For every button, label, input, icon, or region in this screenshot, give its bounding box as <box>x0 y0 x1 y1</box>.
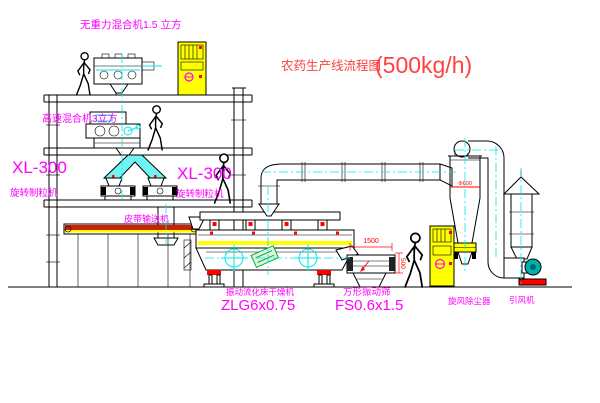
label-dryer: 振动流化床干燥机 <box>226 287 295 297</box>
label-xl300-left: XL-300 <box>12 158 67 177</box>
fan-base <box>519 279 546 285</box>
gravity-free-mixer <box>94 54 162 95</box>
fluid-bed-dryer <box>189 212 358 287</box>
indicator-light <box>449 231 452 234</box>
exhaust-duct <box>258 162 452 216</box>
label-belt-conveyor: 皮带输送机 <box>124 213 169 224</box>
granulator-body-right <box>143 186 177 196</box>
label-fan: 引风机 <box>509 295 535 305</box>
vibration-pad <box>207 270 221 275</box>
label-granulator-center: 旋转制粒机 <box>176 188 224 200</box>
dim-sieve-length: 1500 <box>363 238 379 245</box>
belt-conveyor <box>64 224 198 287</box>
dim-cyclone: Φ600 <box>458 181 472 187</box>
label-gravity-free-mixer: 无重力混合机1.5 立方 <box>80 18 182 31</box>
dim-sieve-height: 500 <box>399 258 406 269</box>
worker-figure-4 <box>405 233 422 287</box>
dryer-body <box>196 230 354 248</box>
worker-figure-1 <box>77 53 91 95</box>
label-sieve-model: FS0.6x1.5 <box>335 297 403 314</box>
control-cabinet-upper <box>178 42 206 95</box>
label-cyclone: 旋风除尘器 <box>448 296 491 306</box>
rotary-granulators <box>101 175 177 200</box>
belt-surface <box>65 225 197 230</box>
worker-figure-2 <box>148 106 162 150</box>
cyclone-outlet-elbow <box>454 141 470 157</box>
page-title-capacity: (500kg/h) <box>375 52 472 78</box>
label-dryer-model: ZLG6x0.75 <box>221 297 295 314</box>
sieve-body <box>347 255 395 273</box>
diagram-canvas: 农药生产线流程图 (500kg/h) 无重力混合机1.5 立方 高速混合机3立方… <box>0 0 600 403</box>
page-title: 农药生产线流程图 <box>281 58 381 73</box>
square-vibrating-sieve <box>347 243 403 287</box>
label-high-speed-mixer: 高速混合机3立方 <box>42 112 118 125</box>
rain-cap <box>504 177 539 194</box>
indicator-light <box>199 46 202 49</box>
induced-draft-fan <box>504 258 546 285</box>
label-xl300-center: XL-300 <box>177 164 232 183</box>
label-granulator-left: 旋转制粒机 <box>10 187 58 199</box>
cad-flow-diagram: 农药生产线流程图 (500kg/h) 无重力混合机1.5 立方 高速混合机3立方… <box>0 0 600 403</box>
granulator-body-left <box>101 186 135 196</box>
exhaust-stack <box>504 170 539 259</box>
control-cabinet-lower <box>430 226 454 286</box>
